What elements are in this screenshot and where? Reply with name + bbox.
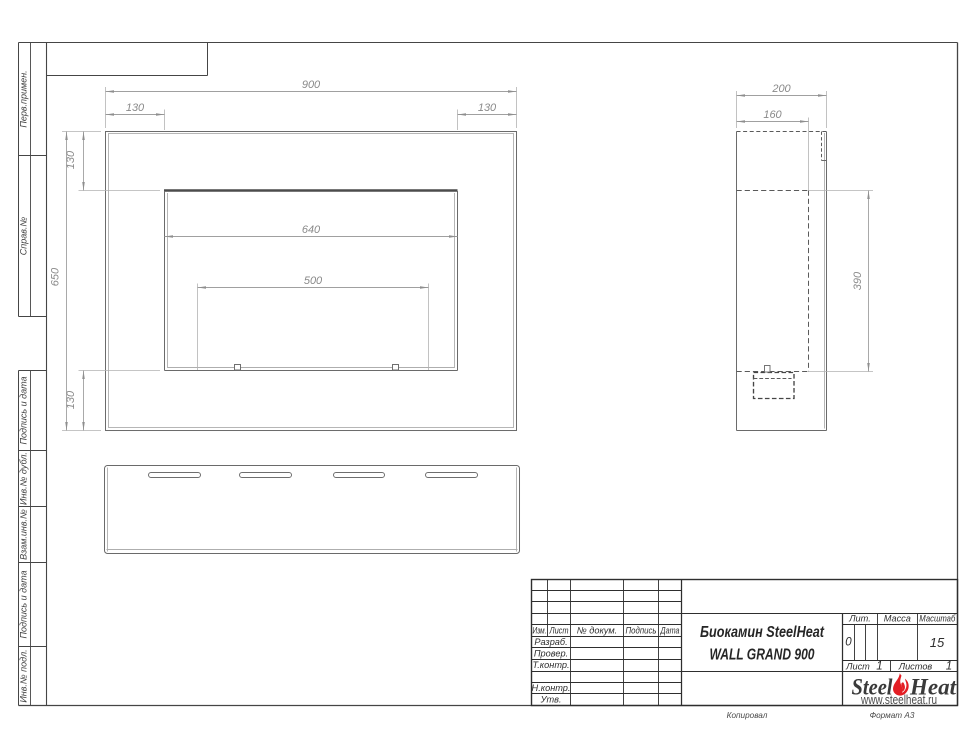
svg-text:Подпись: Подпись	[626, 626, 657, 636]
svg-text:500: 500	[304, 275, 323, 287]
svg-text:Масса: Масса	[884, 614, 911, 624]
svg-text:130: 130	[65, 150, 77, 169]
svg-text:Провер.: Провер.	[534, 649, 568, 659]
svg-text:390: 390	[852, 271, 864, 290]
svg-text:Дата: Дата	[660, 626, 680, 636]
svg-text:160: 160	[763, 109, 782, 121]
svg-text:Масштаб: Масштаб	[919, 614, 956, 624]
svg-text:Справ.№: Справ.№	[19, 217, 29, 256]
svg-text:Лист: Лист	[549, 626, 569, 636]
svg-text:Формат А3: Формат А3	[870, 711, 915, 720]
svg-text:130: 130	[126, 102, 145, 114]
svg-text:Изм.: Изм.	[533, 626, 547, 636]
svg-text:0: 0	[845, 637, 852, 649]
svg-text:Инв.№ подл.: Инв.№ подл.	[19, 649, 29, 702]
svg-text:Утв.: Утв.	[540, 695, 562, 705]
svg-text:130: 130	[65, 390, 77, 409]
svg-text:№ докум.: № докум.	[577, 626, 617, 636]
svg-text:130: 130	[478, 102, 497, 114]
svg-text:1: 1	[946, 660, 952, 672]
svg-text:200: 200	[771, 83, 791, 95]
svg-text:Н.контр.: Н.контр.	[532, 683, 571, 693]
svg-text:640: 640	[302, 224, 321, 236]
svg-text:WALL GRAND 900: WALL GRAND 900	[710, 647, 815, 664]
svg-text:Лист: Лист	[845, 661, 870, 671]
svg-text:Взам.инв.№: Взам.инв.№	[19, 509, 29, 560]
svg-text:Разраб.: Разраб.	[534, 637, 567, 647]
svg-text:Т.контр.: Т.контр.	[532, 660, 569, 670]
svg-text:650: 650	[50, 267, 62, 286]
svg-text:900: 900	[302, 79, 321, 91]
svg-text:Листов: Листов	[898, 661, 933, 671]
svg-text:Лит.: Лит.	[848, 614, 871, 624]
svg-text:Копировал: Копировал	[727, 711, 768, 720]
svg-text:Подпись и дата: Подпись и дата	[19, 376, 29, 444]
svg-text:1: 1	[876, 660, 882, 672]
svg-text:Подпись и дата: Подпись и дата	[19, 570, 29, 638]
svg-text:www.steelheat.ru: www.steelheat.ru	[860, 693, 937, 707]
svg-text:Перв.примен.: Перв.примен.	[19, 70, 29, 127]
svg-text:Биокамин SteelHeat: Биокамин SteelHeat	[700, 624, 825, 641]
svg-text:Инв.№ дубл.: Инв.№ дубл.	[19, 452, 29, 505]
svg-text:15: 15	[930, 635, 945, 650]
